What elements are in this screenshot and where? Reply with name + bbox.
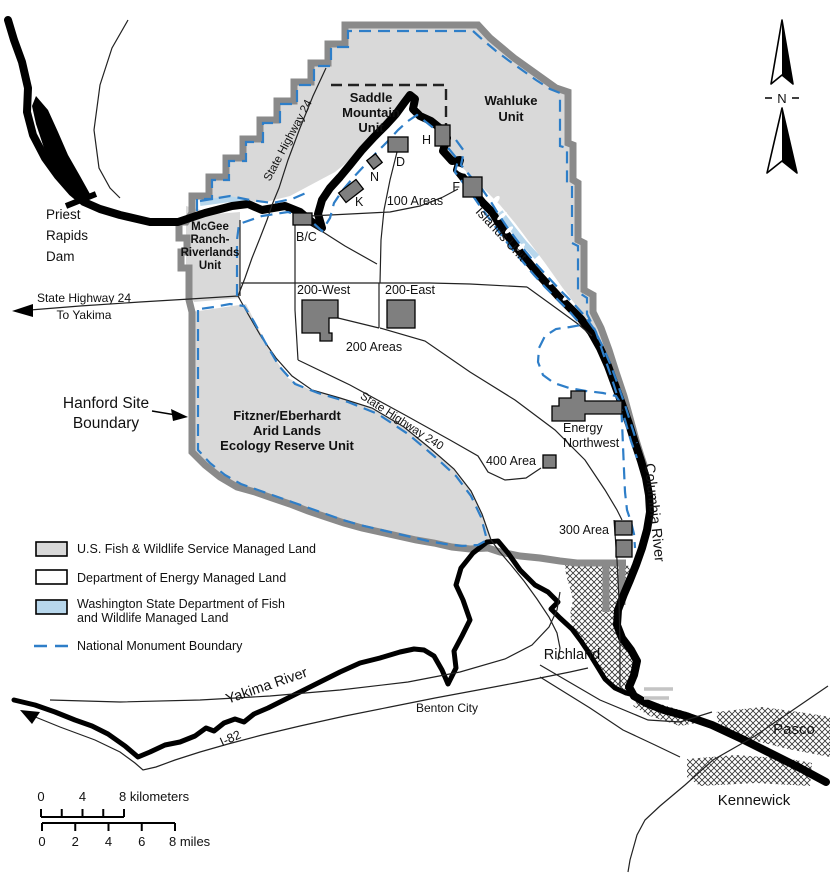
map-legend: U.S. Fish & Wildlife Service Managed Lan…	[34, 542, 316, 653]
road-d-south	[380, 152, 397, 283]
fitzner-label-2: Arid Lands	[253, 423, 321, 438]
road-i82	[28, 668, 588, 770]
mcgee-label-4: Unit	[199, 260, 222, 272]
fitzner-label-3: Ecology Reserve Unit	[220, 438, 354, 453]
mi-label-4: 4	[105, 834, 112, 849]
scale-bar	[41, 809, 175, 831]
reactor-n-label: N	[370, 170, 379, 184]
i82-arrowhead	[20, 710, 40, 724]
i82-label: I-82	[218, 728, 243, 750]
reactor-h-label: H	[422, 133, 431, 147]
fitzner-label-1: Fitzner/Eberhardt	[233, 408, 341, 423]
mi-label-6: 6	[138, 834, 145, 849]
km-label-8: 8 kilometers	[119, 789, 190, 804]
energy-northwest-label-2: Northwest	[563, 436, 620, 450]
legend-swatch-wdfw	[36, 600, 67, 614]
legend-label-fws: U.S. Fish & Wildlife Service Managed Lan…	[77, 542, 316, 556]
roads	[28, 20, 828, 872]
saddle-mountain-label-2: Mountain	[342, 105, 400, 120]
300-area-label: 300 Area	[559, 523, 609, 537]
reactor-bc	[293, 213, 312, 225]
hanford-site-map: N 0 4 8 kilometers 0 2 4 6 8 miles U.S. …	[0, 0, 830, 877]
building-200-west	[302, 300, 338, 341]
yakima-river-label: Yakima River	[224, 665, 310, 708]
reactor-bc-label: B/C	[296, 230, 317, 244]
priest-rapids-label-2: Rapids	[46, 228, 88, 243]
legend-label-wdfw-1: Washington State Department of Fish	[77, 597, 285, 611]
land-ale	[192, 304, 492, 549]
energy-northwest-label-1: Energy	[563, 421, 603, 435]
building-energy-northwest	[552, 391, 622, 421]
mi-label-8: 8 miles	[169, 834, 211, 849]
reactor-d	[388, 137, 408, 152]
to-yakima-arrowhead	[12, 304, 33, 317]
building-200-east	[387, 300, 415, 328]
reactor-f	[463, 177, 482, 197]
mcgee-label-1: McGee	[191, 221, 229, 233]
200-west-label: 200-West	[297, 283, 351, 297]
hanford-boundary-callout-1: Hanford Site	[63, 395, 149, 412]
bridges	[644, 689, 673, 698]
km-label-0: 0	[37, 789, 44, 804]
kennewick-label: Kennewick	[718, 792, 791, 809]
kennewick-area	[687, 755, 812, 786]
north-arrow-icon: N	[765, 20, 799, 173]
saddle-mountain-label-1: Saddle	[350, 90, 393, 105]
benton-city-label: Benton City	[416, 701, 478, 715]
building-300-area-south	[616, 540, 632, 557]
map-canvas: N 0 4 8 kilometers 0 2 4 6 8 miles U.S. …	[0, 0, 830, 877]
mcgee-label-2: Ranch-	[191, 234, 230, 246]
mcgee-label-3: Riverlands	[181, 247, 240, 259]
priest-rapids-label-3: Dam	[46, 249, 75, 264]
hwy24-west-label: State Highway 24	[37, 291, 131, 305]
richland-label: Richland	[544, 647, 600, 663]
mi-label-2: 2	[72, 834, 79, 849]
hanford-boundary-callout-2: Boundary	[73, 415, 140, 432]
mi-label-0: 0	[38, 834, 45, 849]
compass-n-label: N	[777, 91, 786, 106]
road-200-horizontal	[241, 283, 527, 287]
building-400-area	[543, 455, 556, 468]
legend-label-monument: National Monument Boundary	[77, 639, 243, 653]
scale-labels: 0 4 8 kilometers 0 2 4 6 8 miles	[37, 789, 210, 849]
reactor-d-label: D	[396, 155, 405, 169]
boundary-callout-arrow	[152, 409, 188, 421]
to-yakima-label: To Yakima	[57, 308, 112, 322]
legend-swatch-doe	[36, 570, 67, 584]
legend-label-doe: Department of Energy Managed Land	[77, 571, 286, 585]
pasco-label: Pasco	[773, 721, 815, 738]
200-areas-label: 200 Areas	[346, 340, 402, 354]
reactor-k-label: K	[355, 195, 364, 209]
wahluke-label-2: Unit	[498, 109, 524, 124]
200-east-label: 200-East	[385, 283, 436, 297]
reactor-n	[367, 154, 382, 169]
reactor-f-label: F	[452, 180, 460, 194]
road-upper-river	[94, 20, 128, 198]
legend-swatch-fws	[36, 542, 67, 556]
100-areas-label: 100 Areas	[387, 194, 443, 208]
400-area-label: 400 Area	[486, 454, 536, 468]
building-300-area-north	[615, 521, 632, 535]
km-label-4: 4	[79, 789, 86, 804]
reactor-h	[435, 125, 450, 146]
saddle-mountain-label-3: Unit	[358, 120, 384, 135]
wahluke-label-1: Wahluke	[485, 93, 538, 108]
legend-label-wdfw-2: and Wildlife Managed Land	[77, 611, 229, 625]
priest-rapids-label-1: Priest	[46, 207, 81, 222]
